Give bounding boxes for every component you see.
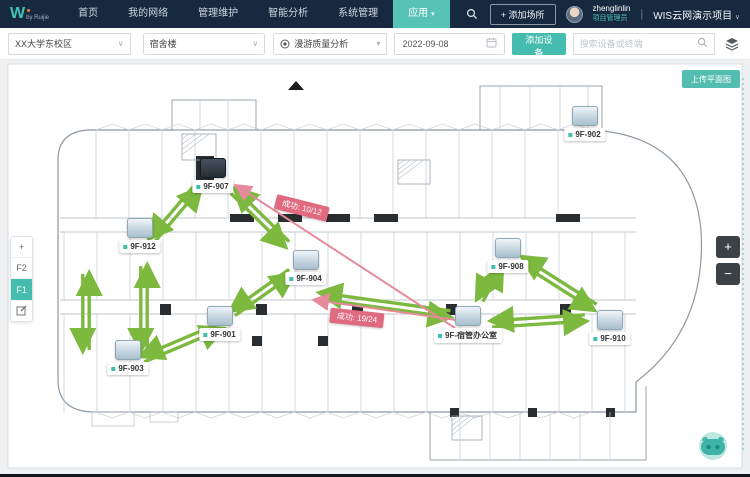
floorplan-canvas[interactable] — [0, 60, 750, 474]
user-name: zhenglinlin — [593, 5, 631, 13]
nav-item-0[interactable]: 首页 — [63, 0, 113, 28]
date-picker[interactable]: 2022-09-08 — [394, 33, 505, 55]
ap-device-9F-910[interactable] — [597, 310, 623, 330]
floor-button-F2[interactable]: F2 — [11, 258, 32, 279]
avatar[interactable] — [566, 6, 583, 23]
logo-subtitle: by Ruijie — [26, 15, 49, 21]
ap-device-9F-907[interactable] — [200, 158, 226, 178]
topnav-right-cluster: + 添加场所 zhenglinlin 项目管理员 | WIS云网演示项目 ∨ — [464, 4, 750, 25]
ap-status-dot — [203, 333, 207, 337]
zoom-in-button[interactable]: + — [716, 236, 740, 258]
ap-status-dot — [111, 367, 115, 371]
ap-status-dot — [123, 245, 127, 249]
chevron-down-icon: ∨ — [246, 39, 258, 48]
ap-device-9F-912[interactable] — [127, 218, 153, 238]
ap-name-text: 9F-907 — [203, 182, 228, 191]
nav-item-5[interactable]: 应用▾ — [393, 0, 450, 28]
ap-label-9F-910[interactable]: 9F-910 — [589, 332, 630, 345]
upload-floorplan-button[interactable]: 上传平面图 — [682, 70, 740, 88]
ap-device-9F-901[interactable] — [207, 306, 233, 326]
floor-button-F1[interactable]: F1 — [11, 279, 32, 300]
ap-label-9F-902[interactable]: 9F-902 — [564, 128, 605, 141]
floor-add-button[interactable]: + — [11, 237, 32, 258]
date-value: 2022-09-08 — [402, 39, 448, 49]
ap-name-text: 9F-宿管办公室 — [445, 330, 497, 341]
ap-label-9F-903[interactable]: 9F-903 — [107, 362, 148, 375]
ap-device-9F-904[interactable] — [293, 250, 319, 270]
ap-device-9F-908[interactable] — [495, 238, 521, 258]
caret-down-icon: ▾ — [370, 39, 380, 48]
building-select[interactable]: 宿舍楼 ∨ — [143, 33, 266, 55]
logo-mark: W — [10, 7, 24, 21]
ap-name-text: 9F-903 — [118, 364, 143, 373]
ap-name-text: 9F-908 — [498, 262, 523, 271]
device-search-box — [573, 33, 715, 55]
zoom-out-button[interactable]: − — [716, 263, 740, 285]
ap-label-9F-宿管办公室[interactable]: 9F-宿管办公室 — [434, 328, 502, 343]
user-role: 项目管理员 — [593, 15, 631, 23]
site-select[interactable]: XX大学东校区 ∨ — [8, 33, 131, 55]
ap-status-dot — [438, 334, 442, 338]
ap-name-text: 9F-904 — [296, 274, 321, 283]
target-icon — [280, 39, 290, 49]
chevron-down-icon: ∨ — [735, 14, 740, 21]
nav-item-1[interactable]: 我的网络 — [113, 0, 183, 28]
add-device-button[interactable]: 添加设备 — [512, 33, 565, 55]
ap-status-dot — [593, 337, 597, 341]
ap-name-text: 9F-902 — [575, 130, 600, 139]
ap-name-text: 9F-912 — [130, 242, 155, 251]
ap-name-text: 9F-910 — [600, 334, 625, 343]
floor-list: F2F1 — [11, 258, 32, 300]
user-block[interactable]: zhenglinlin 项目管理员 — [593, 5, 631, 23]
ap-name-text: 9F-901 — [210, 330, 235, 339]
ap-status-dot — [196, 185, 200, 189]
ap-device-9F-宿管办公室[interactable] — [455, 306, 481, 326]
project-selector[interactable]: WIS云网演示项目 ∨ — [653, 7, 740, 22]
nav-divider: | — [640, 8, 643, 20]
nav-item-3[interactable]: 智能分析 — [253, 0, 323, 28]
caret-down-icon: ▾ — [431, 11, 435, 18]
ap-status-dot — [568, 133, 572, 137]
top-nav-bar: W by Ruijie 首页我的网络管理维护智能分析系统管理应用▾ + 添加场所… — [0, 0, 750, 28]
project-name: WIS云网演示项目 — [653, 11, 732, 22]
toolbar-right-cluster: 漫游质量分析 ▾ 2022-09-08 添加设备 — [273, 33, 742, 55]
ap-device-9F-902[interactable] — [572, 106, 598, 126]
ap-label-9F-904[interactable]: 9F-904 — [285, 272, 326, 285]
ap-label-9F-907[interactable]: 9F-907 — [192, 180, 233, 193]
chevron-down-icon: ∨ — [112, 39, 124, 48]
device-search-input[interactable] — [580, 39, 697, 49]
ap-status-dot — [289, 277, 293, 281]
draw-region-icon[interactable] — [11, 300, 32, 321]
ap-label-9F-901[interactable]: 9F-901 — [199, 328, 240, 341]
ap-status-dot — [491, 265, 495, 269]
add-place-button[interactable]: + 添加场所 — [490, 4, 556, 25]
ap-label-9F-908[interactable]: 9F-908 — [487, 260, 528, 273]
logo-accent-dot — [27, 9, 30, 12]
layers-icon[interactable] — [722, 33, 742, 55]
assistant-robot-icon[interactable] — [694, 428, 732, 462]
analysis-mode-select[interactable]: 漫游质量分析 ▾ — [273, 33, 387, 55]
toolbar: XX大学东校区 ∨ 宿舍楼 ∨ 漫游质量分析 ▾ 2022-09-08 添加设备 — [0, 28, 750, 60]
floorplan-map[interactable]: 上传平面图 + F2F1 + − 9F-9079F-9129F-9049F-90… — [0, 60, 750, 474]
nav-item-2[interactable]: 管理维护 — [183, 0, 253, 28]
analysis-mode-value: 漫游质量分析 — [294, 37, 348, 50]
ap-device-9F-903[interactable] — [115, 340, 141, 360]
site-select-value: XX大学东校区 — [15, 37, 72, 50]
wis-logo[interactable]: W by Ruijie — [10, 7, 49, 21]
building-select-value: 宿舍楼 — [150, 37, 177, 50]
ap-label-9F-912[interactable]: 9F-912 — [119, 240, 160, 253]
nav-items: 首页我的网络管理维护智能分析系统管理应用▾ — [63, 0, 450, 28]
search-icon[interactable] — [464, 6, 480, 22]
search-icon[interactable] — [697, 35, 708, 53]
floor-control: + F2F1 — [10, 236, 33, 322]
nav-item-4[interactable]: 系统管理 — [323, 0, 393, 28]
floorplan-drawing — [8, 64, 743, 468]
calendar-icon — [486, 37, 497, 50]
